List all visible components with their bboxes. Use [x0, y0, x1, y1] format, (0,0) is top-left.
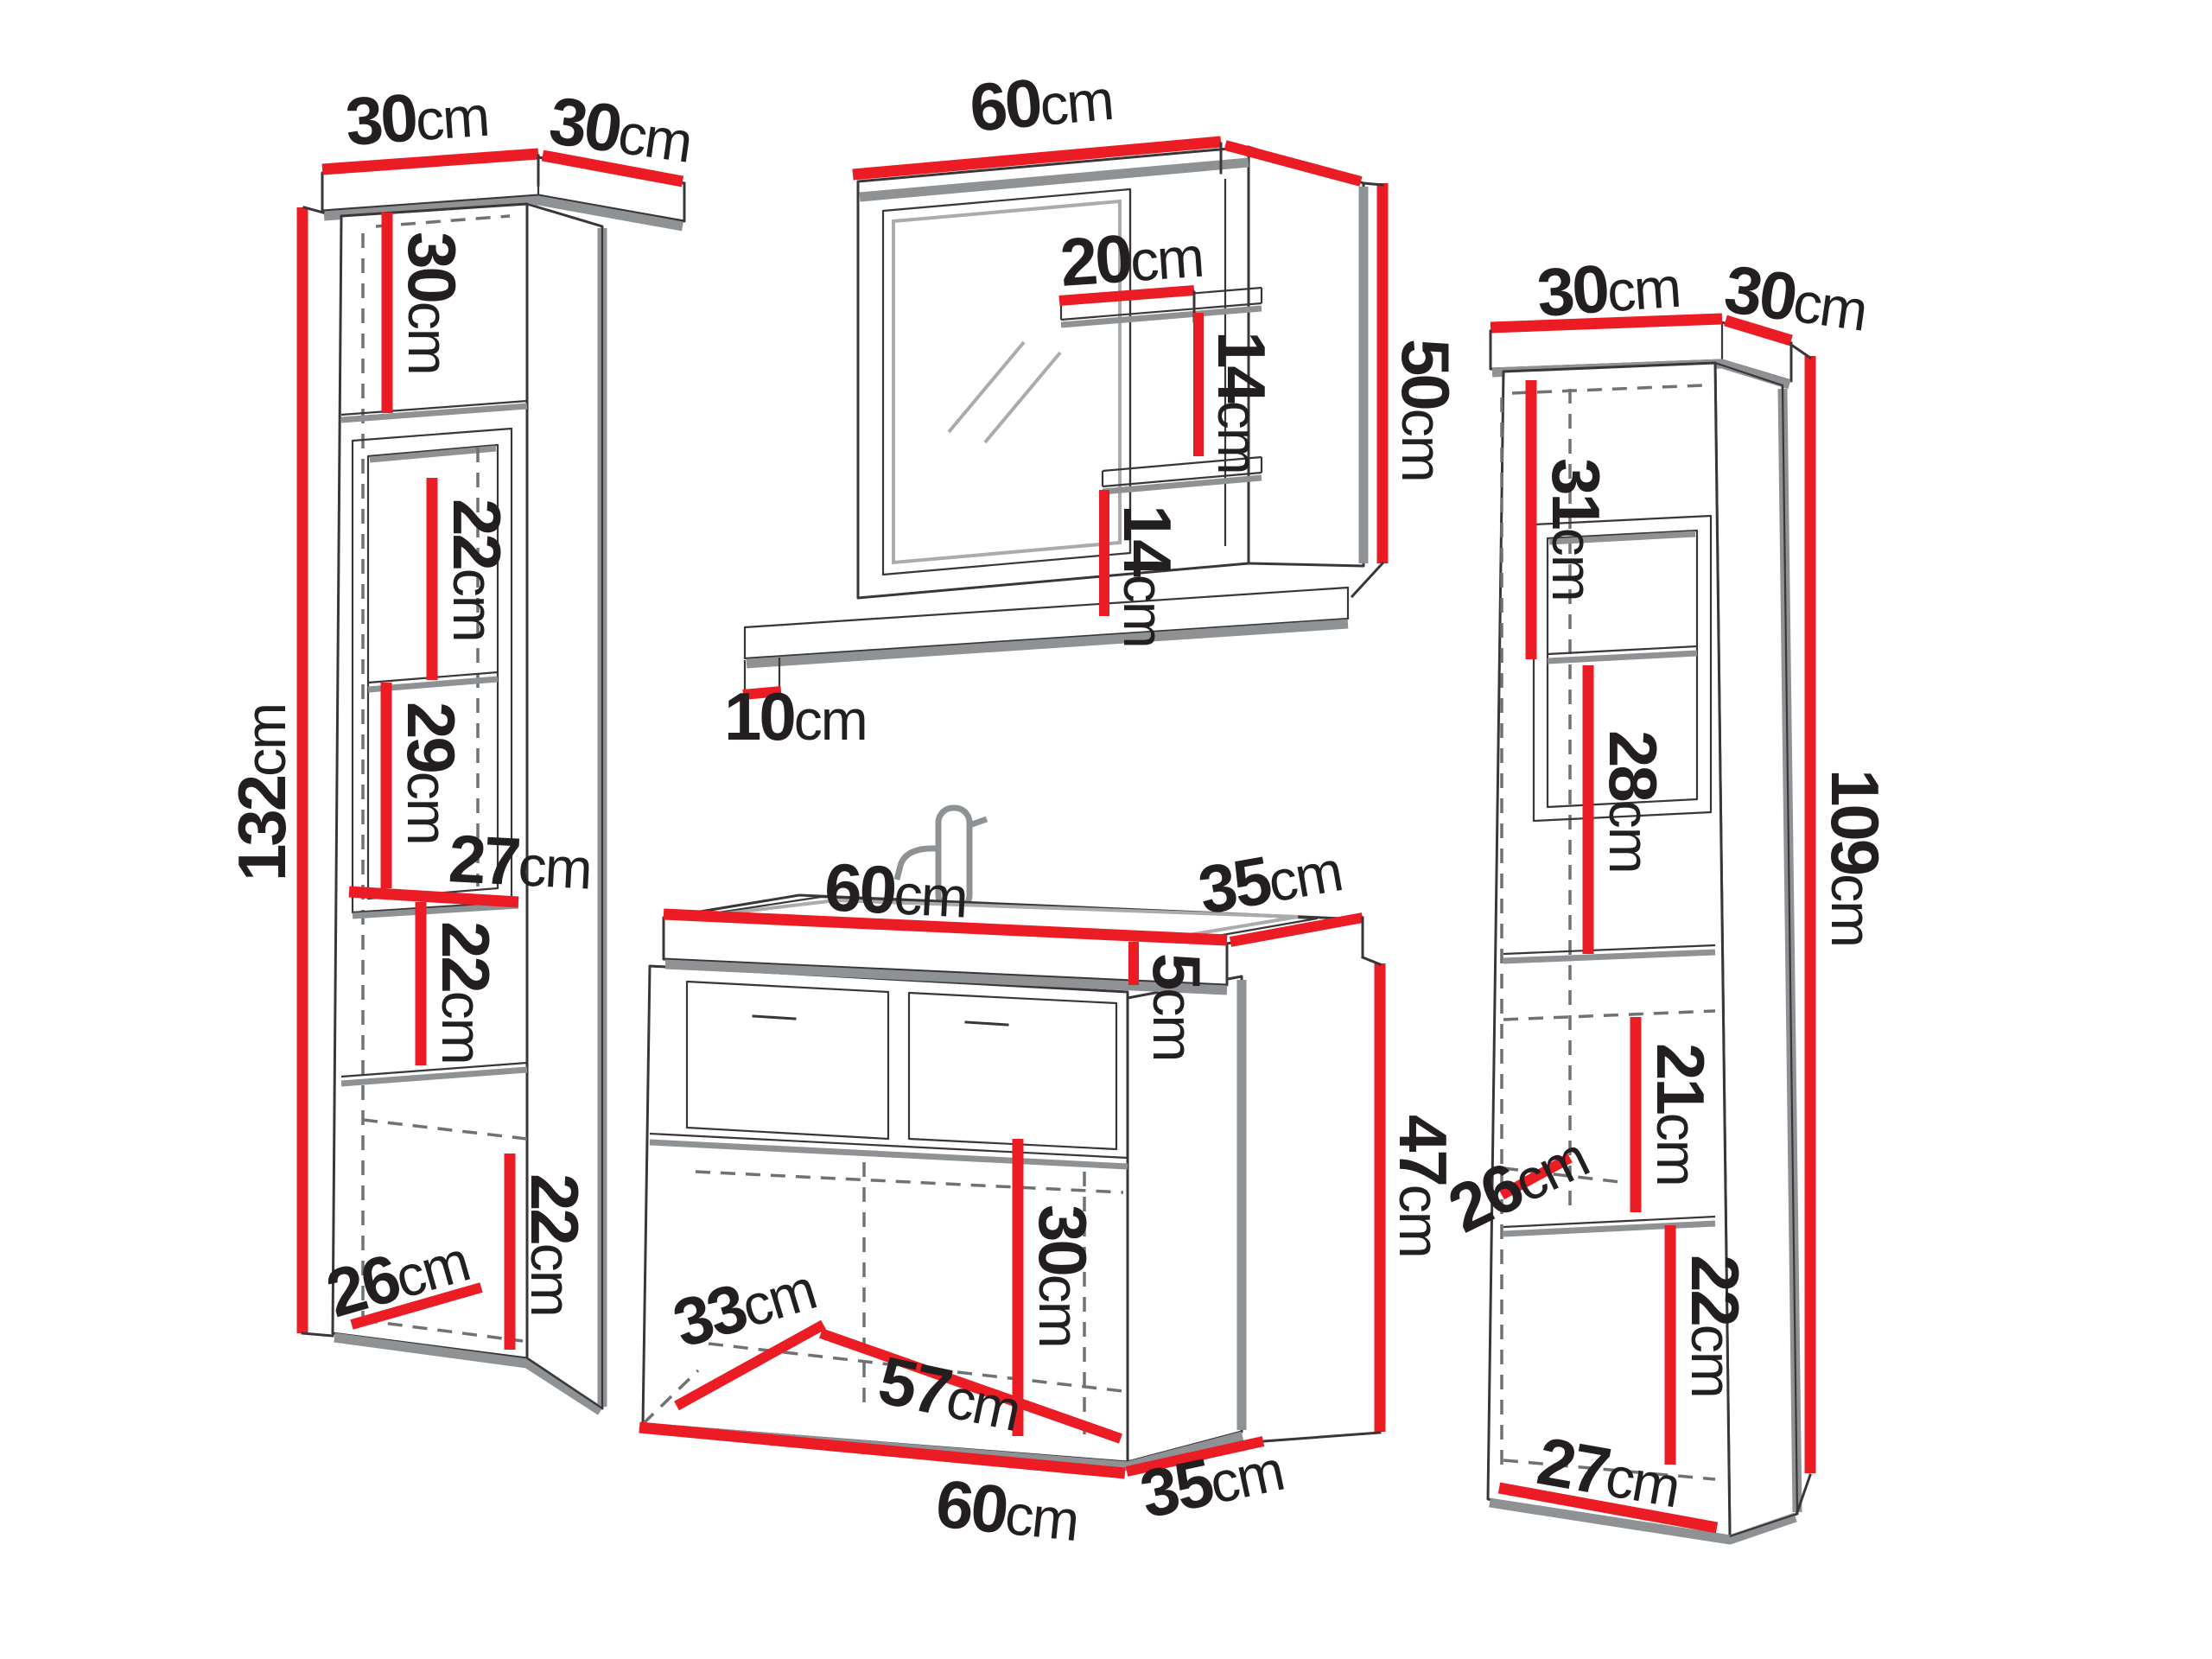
dim-unit: cm [1037, 67, 1115, 137]
dim-label-top-depth: 35cm [1193, 829, 1347, 928]
dim-value: 22 [1677, 1255, 1753, 1325]
dim-label-mirror-width: 60cm [967, 58, 1116, 146]
dim-value: 30 [1535, 250, 1610, 330]
dim-unit: cm [1141, 988, 1205, 1060]
dim-tick [1363, 957, 1380, 964]
dim-value: 14 [1204, 331, 1280, 403]
dim-value: 30 [1720, 251, 1801, 335]
dim-unit: cm [1598, 800, 1662, 873]
dim-unit: cm [1820, 874, 1884, 946]
dim-unit: cm [893, 861, 969, 929]
dim-value: 60 [823, 849, 897, 928]
dim-label-section1: 31cm [1538, 458, 1614, 601]
dim-tick [1352, 563, 1382, 596]
dim-unit: cm [1645, 1113, 1709, 1185]
dim-value: 30 [1025, 1205, 1101, 1274]
dim-unit: cm [1206, 401, 1270, 474]
dim-unit: cm [1541, 528, 1605, 601]
dim-label-section5: 22cm [517, 1173, 593, 1316]
dim-label-section1: 30cm [394, 232, 470, 374]
dim-value: 60 [967, 64, 1044, 146]
dim-unit: cm [430, 991, 494, 1064]
dim-value: 5 [1139, 953, 1215, 989]
dim-unit: cm [1112, 575, 1176, 647]
dim-label-height: 132cm [224, 704, 300, 881]
dim-value: 28 [1595, 730, 1671, 800]
dim-value: 20 [1058, 219, 1133, 300]
dim-label-section3: 21cm [1643, 1043, 1719, 1185]
dim-value: 22 [439, 499, 515, 569]
dim-value: 14 [1109, 505, 1185, 576]
dim-value: 27 [1532, 1422, 1614, 1510]
dim-unit: cm [517, 833, 593, 900]
dim-tick [1263, 1433, 1380, 1441]
dim-unit: cm [614, 101, 695, 175]
dim-unit: cm [1205, 1438, 1289, 1516]
dim-label-shelf-gap-upper: 14cm [1204, 331, 1280, 474]
dim-unit: cm [1002, 1482, 1081, 1553]
dim-unit: cm [1027, 1274, 1091, 1347]
mirror-front-frame [858, 147, 1249, 598]
mirror-cabinet: 60cm 20cm 14cm 14cm 50cm 10cm [724, 58, 1464, 754]
vanity-cabinet: 60cm 35cm 5cm 47cm 30cm 33cm 57cm 60cm 3… [639, 808, 1461, 1555]
diagram-canvas: 30cm 30cm 132cm 30cm 22cm 29cm 27cm 22cm… [0, 0, 2212, 1659]
dim-unit: cm [1388, 1185, 1452, 1257]
dim-unit: cm [1390, 409, 1454, 481]
dim-value: 109 [1817, 769, 1893, 874]
dim-label-mirror-height: 50cm [1388, 339, 1464, 481]
dim-label-height: 109cm [1817, 769, 1893, 946]
dim-unit: cm [1263, 838, 1346, 913]
dim-label-section4: 22cm [428, 921, 504, 1064]
dim-value: 10 [724, 678, 794, 754]
dim-unit: cm [1605, 255, 1681, 324]
dim-value: 31 [1538, 458, 1614, 529]
dim-unit: cm [233, 704, 297, 777]
dim-label-shelf-gap-lower: 14cm [1109, 505, 1185, 647]
left-cabinet: 30cm 30cm 132cm 30cm 22cm 29cm 27cm 22cm… [224, 74, 696, 1411]
dim-value: 27 [447, 820, 520, 899]
dim-tick [302, 1333, 333, 1336]
dim-value: 21 [1643, 1043, 1719, 1114]
dim-unit: cm [1128, 225, 1205, 294]
dim-label-bottom-width: 60cm [932, 1465, 1082, 1555]
dim-label-ledge-depth: 10cm [724, 678, 867, 754]
dim-unit: cm [413, 84, 490, 153]
dim-value: 30 [394, 232, 470, 302]
dim-label-section2: 28cm [1595, 730, 1671, 873]
dim-label-top-width: 30cm [343, 74, 490, 160]
dim-unit: cm [1680, 1325, 1744, 1397]
dim-value: 30 [545, 82, 626, 167]
dim-value: 50 [1388, 339, 1464, 409]
dim-label-top-width: 30cm [1535, 245, 1681, 331]
dim-value: 22 [428, 921, 504, 991]
dim-value: 29 [393, 702, 469, 772]
dim-unit: cm [397, 302, 461, 374]
dim-unit: cm [794, 688, 867, 752]
dim-label-section2: 22cm [439, 499, 515, 641]
dim-tick [1791, 345, 1810, 358]
dim-unit: cm [442, 569, 505, 641]
dim-label-basin-height: 5cm [1139, 953, 1215, 1060]
dim-label-interior-height: 30cm [1025, 1205, 1101, 1347]
ledge-shadow [747, 624, 1348, 664]
furniture-dimension-diagram: 30cm 30cm 132cm 30cm 22cm 29cm 27cm 22cm… [0, 0, 2212, 1659]
dim-tick [1363, 183, 1382, 185]
dim-value: 60 [932, 1465, 1010, 1548]
dim-value: 132 [224, 776, 300, 881]
dim-value: 30 [343, 79, 418, 159]
dim-unit: cm [1601, 1444, 1684, 1519]
right-cabinet: 30cm 30cm 109cm 31cm 28cm 21cm 26cm 22cm… [1437, 245, 1893, 1540]
dim-unit: cm [519, 1243, 583, 1316]
dim-label-section4: 22cm [1677, 1255, 1753, 1397]
dim-value: 22 [517, 1173, 593, 1243]
dim-unit: cm [1789, 270, 1870, 343]
